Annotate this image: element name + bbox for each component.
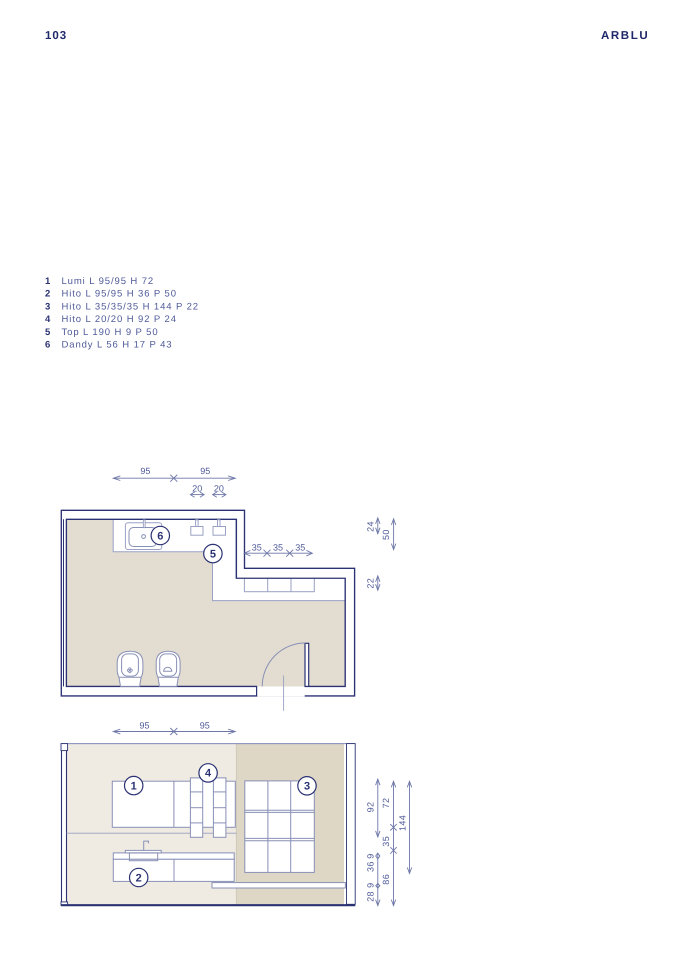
svg-text:35: 35 bbox=[295, 542, 305, 552]
svg-text:95: 95 bbox=[139, 721, 149, 731]
svg-text:2: 2 bbox=[45, 289, 51, 300]
svg-text:3: 3 bbox=[45, 301, 51, 312]
svg-text:9: 9 bbox=[365, 853, 375, 858]
svg-text:86: 86 bbox=[381, 874, 391, 885]
svg-text:22: 22 bbox=[365, 578, 375, 589]
svg-text:6: 6 bbox=[45, 340, 51, 351]
svg-text:3: 3 bbox=[304, 781, 310, 793]
svg-text:36: 36 bbox=[365, 861, 375, 872]
svg-text:Hito L 95/95 H 36 P 50: Hito L 95/95 H 36 P 50 bbox=[62, 289, 177, 300]
svg-text:144: 144 bbox=[397, 815, 407, 831]
svg-text:4: 4 bbox=[45, 314, 51, 325]
svg-text:35: 35 bbox=[273, 542, 283, 552]
svg-text:24: 24 bbox=[365, 521, 375, 532]
svg-text:35: 35 bbox=[252, 542, 262, 552]
svg-text:1: 1 bbox=[45, 276, 51, 287]
svg-text:4: 4 bbox=[205, 768, 212, 780]
svg-text:95: 95 bbox=[140, 466, 150, 476]
svg-text:103: 103 bbox=[45, 30, 67, 42]
svg-text:1: 1 bbox=[131, 780, 137, 792]
svg-text:95: 95 bbox=[200, 721, 210, 731]
svg-text:5: 5 bbox=[210, 548, 216, 560]
svg-text:92: 92 bbox=[365, 802, 375, 813]
svg-text:5: 5 bbox=[45, 327, 51, 338]
svg-text:35: 35 bbox=[381, 836, 391, 847]
svg-text:6: 6 bbox=[157, 530, 163, 542]
svg-text:Lumi L 95/95 H 72: Lumi L 95/95 H 72 bbox=[62, 276, 155, 287]
svg-text:50: 50 bbox=[381, 529, 391, 540]
svg-text:9: 9 bbox=[365, 882, 375, 887]
svg-text:Dandy L 56 H 17 P 43: Dandy L 56 H 17 P 43 bbox=[62, 340, 173, 351]
svg-text:28: 28 bbox=[365, 891, 375, 902]
svg-text:ARBLU: ARBLU bbox=[601, 30, 649, 42]
svg-text:Hito L 35/35/35 H 144 P 22: Hito L 35/35/35 H 144 P 22 bbox=[62, 301, 199, 312]
svg-text:2: 2 bbox=[136, 872, 142, 884]
svg-text:Hito L 20/20 H 92 P 24: Hito L 20/20 H 92 P 24 bbox=[62, 314, 177, 325]
svg-text:95: 95 bbox=[200, 466, 210, 476]
svg-text:Top L 190 H 9 P 50: Top L 190 H 9 P 50 bbox=[62, 327, 159, 338]
svg-text:20: 20 bbox=[214, 483, 224, 493]
svg-text:20: 20 bbox=[192, 483, 202, 493]
svg-text:72: 72 bbox=[381, 798, 391, 809]
